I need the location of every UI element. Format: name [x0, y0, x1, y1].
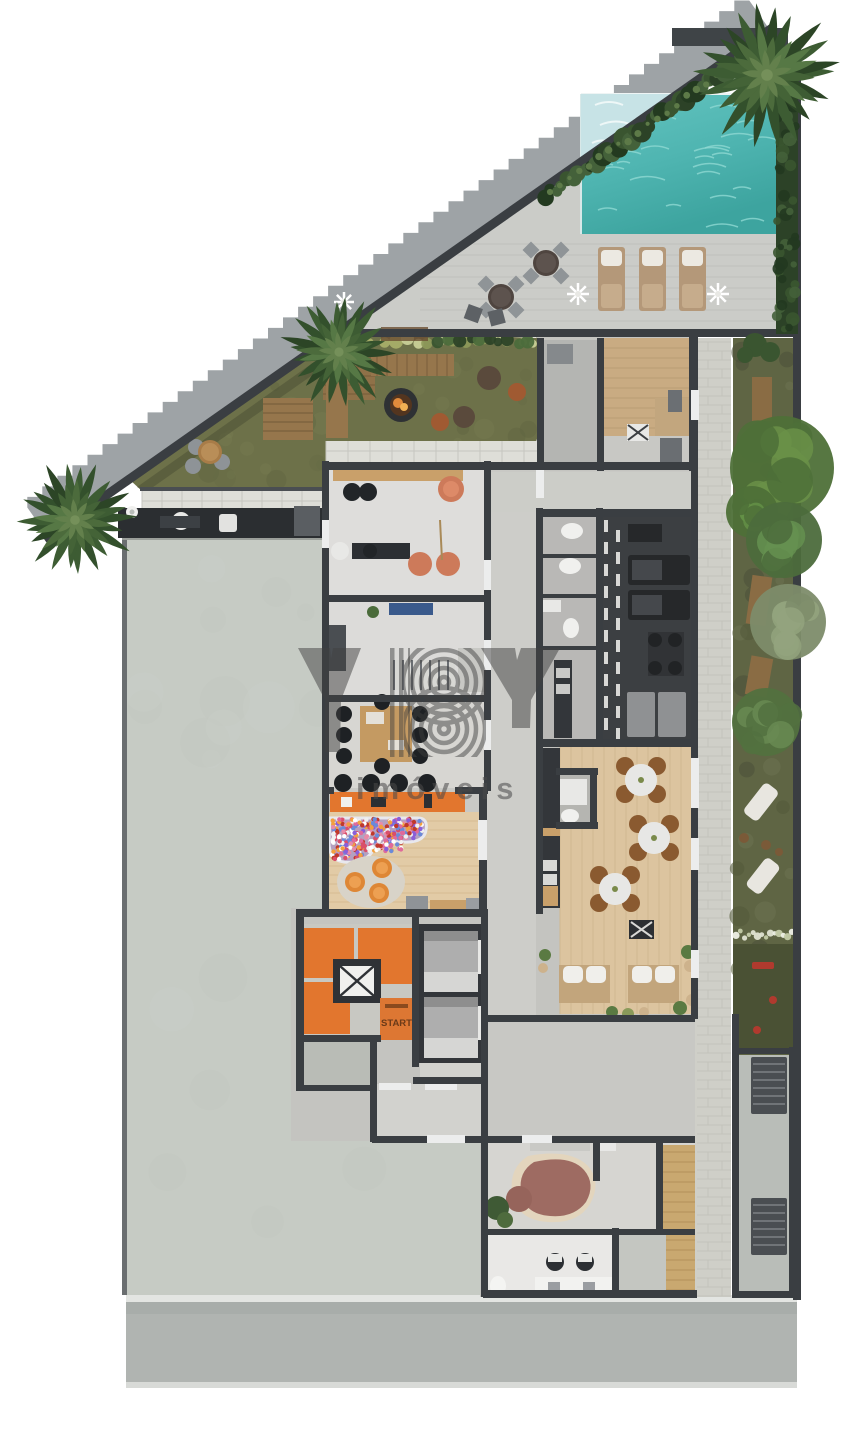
svg-text:imóveis: imóveis — [356, 771, 520, 806]
svg-text:START: START — [381, 1018, 412, 1029]
